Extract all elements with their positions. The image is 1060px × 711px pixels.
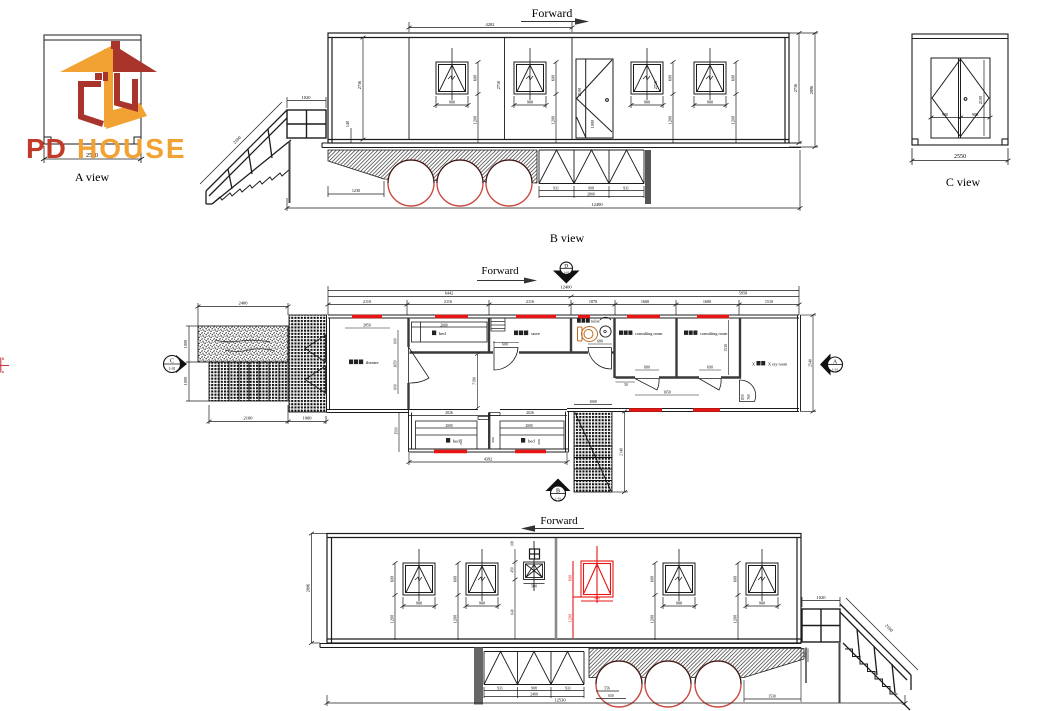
svg-text:1000: 1000 [589, 400, 597, 404]
svg-text:1000: 1000 [303, 416, 313, 421]
svg-text:600: 600 [537, 439, 541, 444]
svg-text:1650: 1650 [394, 360, 398, 367]
svg-text:2896: 2896 [809, 86, 814, 94]
svg-text:900: 900 [942, 112, 948, 117]
svg-text:2000: 2000 [445, 424, 452, 428]
svg-text:2736: 2736 [793, 84, 798, 92]
svg-text:450: 450 [511, 567, 515, 573]
svg-text:50: 50 [624, 383, 628, 387]
svg-text:690: 690 [707, 366, 713, 370]
svg-text:X ray room: X ray room [768, 362, 788, 367]
svg-text:bed: bed [528, 439, 535, 444]
svg-text:2540: 2540 [809, 359, 813, 367]
svg-text:1650: 1650 [663, 391, 671, 395]
svg-text:2850: 2850 [363, 324, 371, 328]
svg-text:900: 900 [491, 437, 495, 442]
svg-text:1020: 1020 [817, 595, 827, 600]
svg-text:C: C [170, 359, 174, 365]
svg-text:Forward: Forward [540, 515, 578, 527]
svg-text:7190: 7190 [473, 377, 477, 385]
svg-text:1230: 1230 [352, 188, 360, 193]
svg-text:2716: 2716 [496, 81, 501, 89]
svg-text:1-01: 1-01 [555, 497, 562, 501]
svg-text:1-01: 1-01 [832, 368, 839, 372]
svg-text:1200: 1200 [568, 614, 573, 622]
svg-text:5958: 5958 [739, 291, 747, 296]
svg-text:600: 600 [502, 343, 508, 347]
svg-text:6442: 6442 [445, 291, 453, 296]
svg-text:1600: 1600 [641, 299, 649, 304]
svg-text:2800: 2800 [587, 193, 595, 197]
svg-text:680: 680 [644, 366, 650, 370]
svg-text:2110: 2110 [363, 299, 371, 304]
svg-text:760: 760 [747, 394, 751, 400]
svg-text:908: 908 [531, 687, 537, 691]
svg-text:B view: B view [550, 231, 585, 245]
svg-text:2716: 2716 [653, 81, 658, 89]
svg-text:140: 140 [345, 121, 350, 127]
svg-text:1600: 1600 [703, 299, 711, 304]
svg-text:2400: 2400 [530, 693, 538, 697]
svg-text:1500: 1500 [395, 427, 399, 434]
svg-text:C view: C view [946, 175, 981, 189]
svg-text:1000: 1000 [183, 340, 188, 348]
svg-text:900: 900 [594, 596, 600, 601]
svg-text:1510: 1510 [765, 299, 773, 304]
svg-text:650: 650 [608, 694, 614, 698]
svg-text:2140: 2140 [620, 448, 624, 456]
svg-text:931: 931 [565, 687, 571, 691]
svg-text:1-01: 1-01 [169, 367, 176, 371]
svg-text:600: 600 [459, 439, 463, 444]
svg-text:1530: 1530 [724, 344, 728, 352]
svg-text:1000: 1000 [183, 377, 188, 385]
svg-text:680: 680 [597, 340, 603, 344]
svg-text:bed: bed [439, 331, 446, 336]
svg-text:12400: 12400 [560, 285, 572, 290]
svg-text:2000: 2000 [440, 324, 447, 328]
svg-text:A: A [833, 360, 838, 366]
svg-text:4282: 4282 [486, 22, 495, 27]
svg-text:A view: A view [75, 170, 110, 184]
svg-text:2736: 2736 [357, 81, 362, 89]
svg-text:D: D [564, 264, 568, 270]
svg-text:2000: 2000 [525, 424, 532, 428]
svg-text:900: 900 [972, 112, 978, 117]
svg-text:2116: 2116 [526, 299, 534, 304]
svg-text:1-01: 1-01 [563, 271, 570, 275]
svg-text:2116: 2116 [444, 299, 452, 304]
svg-text:500: 500 [531, 585, 537, 589]
svg-text:556: 556 [604, 687, 610, 691]
svg-text:PD: PD [26, 133, 67, 164]
svg-text:600: 600 [394, 338, 398, 344]
svg-text:908: 908 [588, 187, 594, 191]
svg-text:X: X [752, 362, 755, 367]
svg-text:HOUSE: HOUSE [77, 133, 187, 164]
svg-text:Forward: Forward [532, 6, 573, 20]
svg-text:2896: 2896 [306, 584, 311, 592]
svg-text:300: 300 [511, 541, 515, 547]
svg-text:Forward: Forward [481, 265, 519, 277]
svg-text:931: 931 [623, 187, 629, 191]
svg-text:2400: 2400 [239, 301, 249, 306]
svg-text:2026: 2026 [526, 411, 534, 415]
svg-text:2550: 2550 [954, 154, 966, 160]
svg-text:2100: 2100 [978, 96, 983, 104]
svg-text:consulting room: consulting room [700, 331, 728, 336]
svg-text:12490: 12490 [591, 202, 603, 207]
svg-text:B: B [556, 489, 560, 495]
svg-text:640: 640 [511, 609, 515, 615]
svg-text:consulting room: consulting room [635, 331, 663, 336]
svg-text:toilet: toilet [591, 319, 600, 324]
svg-text:600: 600 [394, 384, 398, 390]
svg-text:store: store [531, 331, 540, 336]
svg-text:12530: 12530 [554, 698, 566, 703]
svg-text:theatre: theatre [366, 360, 379, 365]
svg-text:600: 600 [568, 575, 573, 581]
svg-text:931: 931 [553, 187, 559, 191]
svg-text:1000: 1000 [590, 120, 595, 128]
svg-text:4392: 4392 [484, 457, 492, 462]
svg-text:2100: 2100 [577, 88, 582, 96]
svg-text:1530: 1530 [768, 695, 776, 699]
svg-text:931: 931 [497, 687, 503, 691]
svg-text:2026: 2026 [445, 411, 453, 415]
svg-text:1870: 1870 [589, 299, 597, 304]
svg-text:1020: 1020 [302, 95, 312, 100]
svg-text:2100: 2100 [244, 416, 254, 421]
svg-text:850: 850 [741, 394, 745, 400]
